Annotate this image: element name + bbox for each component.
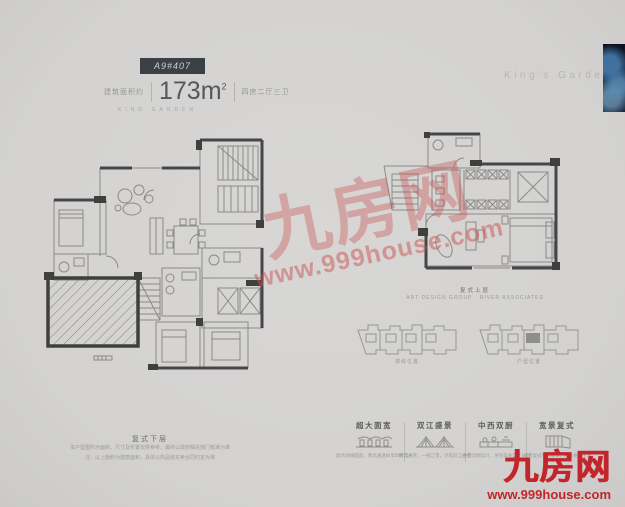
keyplan-right: 户型位置 <box>474 318 584 365</box>
feature-col: 超大面宽 超大阔绰面宽，南北通透纵享四时风光 <box>344 420 404 464</box>
site-logo-block: 九房网 www.999house.com <box>487 450 611 501</box>
lower-plan-caption: 复式下层 本户型图所示面积、尺寸及布置仅供参考，最终以政府相关部门核准为准 注：… <box>40 434 260 463</box>
upper-caption-title: 复式上层 <box>385 286 565 294</box>
facade-icon <box>354 434 394 449</box>
feature-title: 中西双厨 <box>478 420 514 431</box>
feature-title: 超大面宽 <box>356 420 392 431</box>
lower-caption-title: 复式下层 <box>40 434 260 444</box>
header-subtitle: KING GARDEN <box>118 107 197 113</box>
lower-caption-line2: 注：以上面积为建筑面积，具体以商品房买卖合同约定为准 <box>40 454 260 464</box>
area-row: 建筑面积约 173m2 四房二厅三卫 <box>104 79 290 104</box>
lower-caption-line1: 本户型图所示面积、尺寸及布置仅供参考，最终以政府相关部门核准为准 <box>40 444 260 454</box>
upper-plan-caption: 复式上层 ART DESIGN GROUP · RIVER ASSOCIATES <box>385 286 565 304</box>
highlighted-unit <box>526 333 540 343</box>
keyplan-left-label: 楼栋位置 <box>352 358 462 365</box>
area-label: 建筑面积约 <box>104 87 144 97</box>
divider <box>234 82 235 102</box>
upper-caption-line: ART DESIGN GROUP · RIVER ASSOCIATES <box>385 294 565 304</box>
area-value: 173m2 <box>159 79 227 104</box>
unit-badge-label: A9#407 <box>140 58 205 74</box>
keyplan-right-label: 户型位置 <box>474 358 584 365</box>
bridge-icon <box>415 434 455 449</box>
lower-floor-plan <box>32 138 272 383</box>
feature-col: 双江盛景 瞰江大宅，一线江景，尽揽双江盛景 <box>405 420 465 464</box>
unit-badge: A9#407 <box>140 56 205 74</box>
keyplan-left: 楼栋位置 <box>352 318 462 365</box>
rooms-label: 四房二厅三卫 <box>242 87 290 97</box>
area-sup: 2 <box>222 82 227 92</box>
site-logo: 九房网 <box>487 450 611 485</box>
site-url: www.999house.com <box>487 488 611 501</box>
duplex-icon <box>537 434 577 449</box>
floorplan-flyer: A9#407 建筑面积约 173m2 四房二厅三卫 KING GARDEN Ki… <box>0 0 625 507</box>
brand-name: King's Garden <box>504 70 613 81</box>
feature-desc: 瞰江大宅，一线江景，尽揽双江盛景 <box>399 452 471 458</box>
divider <box>151 82 152 102</box>
brand-photo <box>603 44 625 112</box>
feature-title: 宽景复式 <box>539 420 575 431</box>
feature-title: 双江盛景 <box>417 420 453 431</box>
kitchen-icon <box>476 434 516 449</box>
